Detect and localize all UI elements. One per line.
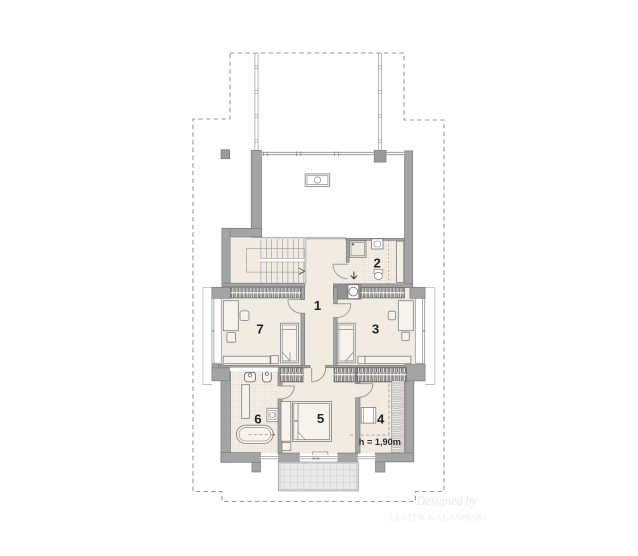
svg-text:LESZEK KALASINSKI: LESZEK KALASINSKI: [390, 513, 487, 524]
svg-text:5: 5: [317, 411, 324, 426]
svg-text:7: 7: [256, 321, 263, 336]
svg-text:3: 3: [372, 321, 379, 336]
svg-text:2: 2: [374, 255, 381, 270]
svg-text:h = 1,90m: h = 1,90m: [359, 437, 401, 447]
svg-text:Designed by: Designed by: [416, 494, 478, 508]
svg-text:1: 1: [314, 298, 321, 313]
svg-text:6: 6: [254, 411, 261, 426]
svg-text:4: 4: [377, 412, 385, 427]
